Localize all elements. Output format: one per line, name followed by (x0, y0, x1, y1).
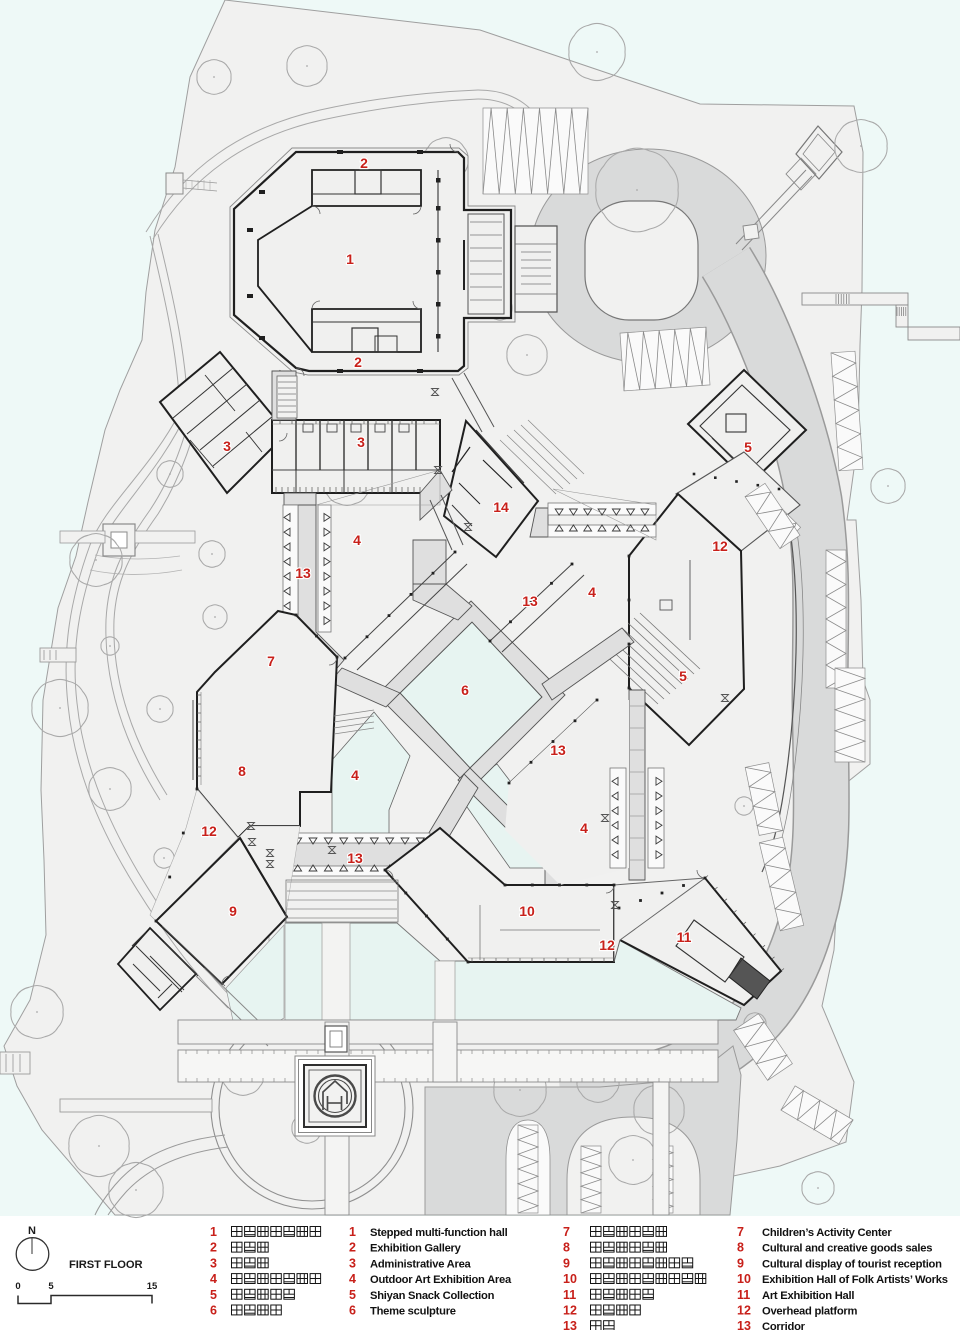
svg-text:Exhibition Gallery: Exhibition Gallery (370, 1243, 462, 1255)
svg-text:Exhibition Hall of Folk Artist: Exhibition Hall of Folk Artists’ Works (762, 1274, 948, 1286)
svg-text:3: 3 (210, 1256, 217, 1270)
svg-text:Stepped multi-function hall: Stepped multi-function hall (370, 1227, 508, 1239)
svg-text:3: 3 (349, 1256, 356, 1270)
svg-text:11: 11 (677, 929, 692, 945)
svg-text:3: 3 (357, 434, 365, 450)
svg-text:7: 7 (563, 1225, 570, 1239)
svg-text:2: 2 (354, 354, 362, 370)
svg-text:7: 7 (737, 1225, 744, 1239)
svg-text:14: 14 (493, 499, 509, 515)
svg-text:6: 6 (461, 682, 469, 698)
svg-text:8: 8 (563, 1241, 570, 1255)
svg-text:6: 6 (210, 1304, 217, 1318)
svg-text:6: 6 (349, 1304, 356, 1318)
svg-text:13: 13 (522, 593, 538, 609)
svg-text:15: 15 (147, 1281, 158, 1292)
svg-text:FIRST FLOOR: FIRST FLOOR (69, 1259, 142, 1271)
svg-text:2: 2 (210, 1241, 217, 1255)
svg-text:8: 8 (737, 1241, 744, 1255)
svg-text:Overhead platform: Overhead platform (762, 1306, 858, 1318)
svg-text:4: 4 (210, 1272, 217, 1286)
svg-text:Cultural and creative goods sa: Cultural and creative goods sales (762, 1243, 932, 1255)
svg-text:Administrative Area: Administrative Area (370, 1258, 472, 1270)
svg-text:4: 4 (588, 584, 596, 600)
svg-text:5: 5 (679, 668, 687, 684)
svg-text:13: 13 (295, 565, 311, 581)
svg-text:4: 4 (349, 1272, 356, 1286)
svg-text:3: 3 (223, 438, 231, 454)
svg-text:5: 5 (349, 1288, 356, 1302)
svg-text:11: 11 (563, 1288, 576, 1302)
svg-text:10: 10 (563, 1272, 577, 1286)
svg-text:10: 10 (519, 903, 535, 919)
svg-text:5: 5 (48, 1281, 54, 1292)
svg-text:Corridor: Corridor (762, 1321, 806, 1330)
svg-text:13: 13 (347, 850, 363, 866)
svg-text:1: 1 (346, 251, 354, 267)
svg-text:N: N (28, 1225, 36, 1237)
svg-text:0: 0 (15, 1281, 20, 1292)
svg-text:10: 10 (737, 1272, 751, 1286)
svg-text:8: 8 (238, 763, 246, 779)
svg-text:12: 12 (737, 1304, 751, 1318)
svg-text:Children’s Activity Center: Children’s Activity Center (762, 1227, 892, 1239)
svg-text:12: 12 (201, 823, 217, 839)
svg-text:13: 13 (563, 1319, 577, 1330)
svg-text:12: 12 (712, 538, 728, 554)
svg-text:Outdoor Art Exhibition Area: Outdoor Art Exhibition Area (370, 1274, 512, 1286)
svg-text:7: 7 (267, 653, 275, 669)
svg-text:Art Exhibition Hall: Art Exhibition Hall (762, 1290, 854, 1302)
svg-text:4: 4 (351, 767, 359, 783)
svg-text:9: 9 (229, 903, 237, 919)
svg-text:12: 12 (599, 937, 615, 953)
svg-text:4: 4 (353, 532, 361, 548)
svg-text:9: 9 (563, 1256, 570, 1270)
svg-text:Theme sculpture: Theme sculpture (370, 1306, 456, 1318)
svg-text:9: 9 (737, 1256, 744, 1270)
svg-text:13: 13 (737, 1319, 751, 1330)
svg-text:13: 13 (550, 742, 566, 758)
svg-text:2: 2 (349, 1241, 356, 1255)
svg-text:1: 1 (349, 1225, 356, 1239)
svg-text:12: 12 (563, 1304, 577, 1318)
svg-text:1: 1 (210, 1225, 217, 1239)
svg-text:2: 2 (360, 155, 368, 171)
svg-text:4: 4 (580, 820, 588, 836)
svg-text:Shiyan Snack Collection: Shiyan Snack Collection (370, 1290, 495, 1302)
svg-text:5: 5 (210, 1288, 217, 1302)
svg-text:Cultural display of tourist re: Cultural display of tourist reception (762, 1258, 942, 1270)
svg-text:11: 11 (737, 1288, 750, 1302)
svg-text:5: 5 (744, 439, 752, 455)
